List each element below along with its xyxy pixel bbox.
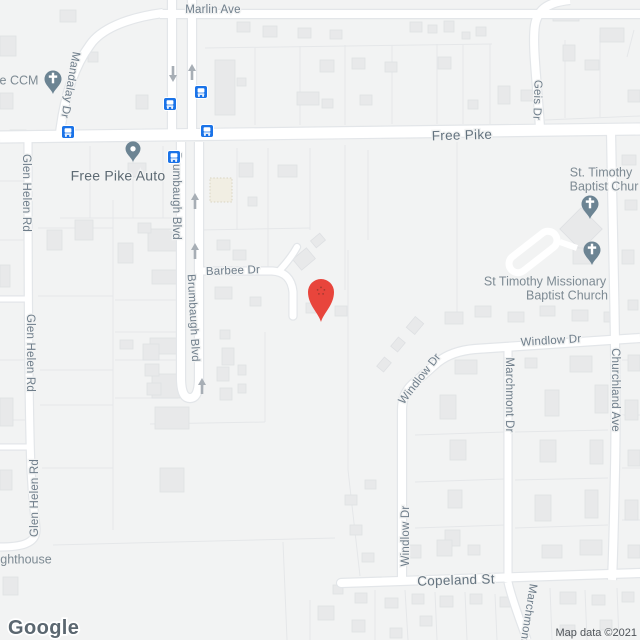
- building: [595, 385, 608, 413]
- building: [462, 32, 470, 39]
- building: [585, 490, 598, 518]
- label-copeland-st: Copeland St: [417, 571, 495, 588]
- google-logo[interactable]: Google: [8, 617, 79, 639]
- building: [217, 367, 229, 381]
- building: [476, 27, 486, 36]
- label-lighthouse-poi: ghthouse: [0, 552, 51, 566]
- building: [345, 495, 357, 505]
- label-marchmont-dr: Marchmont Dr: [503, 357, 515, 432]
- building: [628, 300, 638, 310]
- building: [143, 344, 159, 360]
- building: [628, 450, 640, 466]
- building: [120, 340, 133, 349]
- building: [390, 628, 402, 638]
- label-glen-helen-rd-1: Glen Helen Rd: [20, 154, 32, 232]
- building: [239, 163, 253, 177]
- building: [448, 490, 462, 508]
- label-free-pike-auto-poi: Free Pike Auto: [71, 168, 166, 184]
- building: [47, 230, 62, 250]
- building: [622, 592, 634, 602]
- building: [628, 355, 640, 371]
- building: [592, 595, 605, 605]
- building: [237, 78, 246, 86]
- building: [540, 306, 555, 316]
- building: [145, 364, 159, 376]
- label-ccm-poi: e CCM: [0, 73, 38, 87]
- building: [560, 592, 576, 604]
- bus-stop-icon[interactable]: [164, 98, 177, 111]
- building: [580, 540, 602, 555]
- building: [540, 440, 556, 462]
- building: [360, 95, 372, 105]
- building: [438, 57, 451, 69]
- building: [335, 306, 347, 316]
- building: [250, 297, 261, 306]
- building: [535, 495, 551, 521]
- building: [420, 616, 432, 626]
- building: [138, 223, 151, 233]
- building: [440, 596, 453, 607]
- building: [136, 95, 148, 109]
- building: [238, 384, 246, 393]
- building: [248, 197, 257, 206]
- building: [455, 360, 477, 374]
- building: [320, 60, 334, 72]
- building: [622, 155, 636, 165]
- building: [0, 36, 16, 56]
- building: [385, 598, 398, 608]
- building: [215, 60, 235, 115]
- building: [0, 93, 13, 109]
- building: [75, 220, 93, 240]
- label-glen-helen-rd-2: Glen Helen Rd: [24, 314, 36, 392]
- building: [352, 620, 365, 632]
- building: [625, 400, 638, 420]
- building: [0, 398, 13, 426]
- building: [625, 200, 637, 210]
- label-marlin-ave: Marlin Ave: [185, 4, 240, 16]
- map-canvas[interactable]: Marlin AveMandalay DrFree PikeGeis DrGle…: [0, 0, 640, 640]
- building: [440, 395, 456, 419]
- building: [525, 358, 537, 368]
- building: [542, 545, 562, 558]
- building: [625, 500, 638, 520]
- building: [355, 593, 367, 603]
- building: [318, 606, 334, 620]
- building: [222, 348, 234, 365]
- building: [628, 90, 640, 102]
- label-churchland-ave: Churchland Ave: [609, 348, 621, 432]
- building: [468, 545, 480, 555]
- building: [545, 390, 559, 416]
- building: [160, 468, 184, 492]
- building: [470, 594, 482, 604]
- building: [220, 388, 232, 400]
- building: [450, 440, 466, 460]
- building: [585, 60, 599, 70]
- bus-stop-icon[interactable]: [201, 125, 214, 138]
- building: [365, 480, 376, 489]
- building: [215, 287, 232, 299]
- label-st-timothy-line2: Baptist Chur: [570, 179, 639, 193]
- building: [412, 594, 424, 604]
- building: [570, 356, 592, 372]
- label-geis-dr: Geis Dr: [530, 80, 543, 121]
- label-windlow-dr-v: Windlow Dr: [400, 506, 412, 567]
- building: [622, 250, 634, 264]
- building: [590, 440, 603, 464]
- building: [297, 92, 319, 105]
- building: [437, 540, 452, 556]
- building: [263, 26, 277, 37]
- bus-stop-icon[interactable]: [62, 126, 75, 139]
- building: [628, 545, 640, 558]
- label-st-timothy-missionary-line1: St Timothy Missionary: [484, 274, 607, 288]
- label-st-timothy-line1: St. Timothy: [570, 165, 633, 179]
- building: [444, 21, 454, 32]
- label-brumbaugh-blvd-1: Brumbaugh Blvd: [170, 152, 182, 240]
- building: [410, 22, 422, 32]
- bus-stop-icon[interactable]: [195, 86, 208, 99]
- building: [563, 45, 575, 61]
- building: [217, 240, 230, 250]
- building: [508, 312, 524, 322]
- building: [60, 10, 76, 22]
- building: [237, 22, 250, 32]
- building: [385, 62, 397, 72]
- building: [468, 100, 478, 109]
- label-barbee-dr: Barbee Dr: [206, 264, 261, 278]
- building: [330, 30, 342, 39]
- building: [3, 577, 18, 595]
- building: [155, 407, 189, 429]
- building: [0, 265, 10, 287]
- building: [147, 383, 161, 395]
- building: [498, 86, 510, 104]
- building: [445, 312, 463, 324]
- building: [152, 270, 178, 284]
- map-attribution: Map data ©2021: [556, 627, 638, 639]
- label-st-timothy-missionary-line2: Baptist Church: [526, 288, 608, 302]
- building: [352, 58, 365, 69]
- building: [278, 165, 297, 177]
- building: [600, 28, 624, 42]
- building: [475, 306, 491, 317]
- building: [322, 99, 333, 108]
- building: [238, 365, 246, 375]
- bus-stop-icon[interactable]: [168, 151, 181, 164]
- building: [220, 330, 230, 339]
- map-viewport[interactable]: Marlin AveMandalay DrFree PikeGeis DrGle…: [0, 0, 640, 640]
- building: [362, 553, 374, 562]
- label-glen-helen-rd-3: Glen Helen Rd: [29, 459, 41, 537]
- label-free-pike: Free Pike: [432, 127, 493, 144]
- building: [0, 470, 12, 490]
- building: [572, 310, 588, 321]
- building: [233, 250, 246, 260]
- building: [298, 28, 311, 38]
- building: [118, 243, 133, 263]
- building: [428, 25, 437, 33]
- building: [350, 525, 362, 535]
